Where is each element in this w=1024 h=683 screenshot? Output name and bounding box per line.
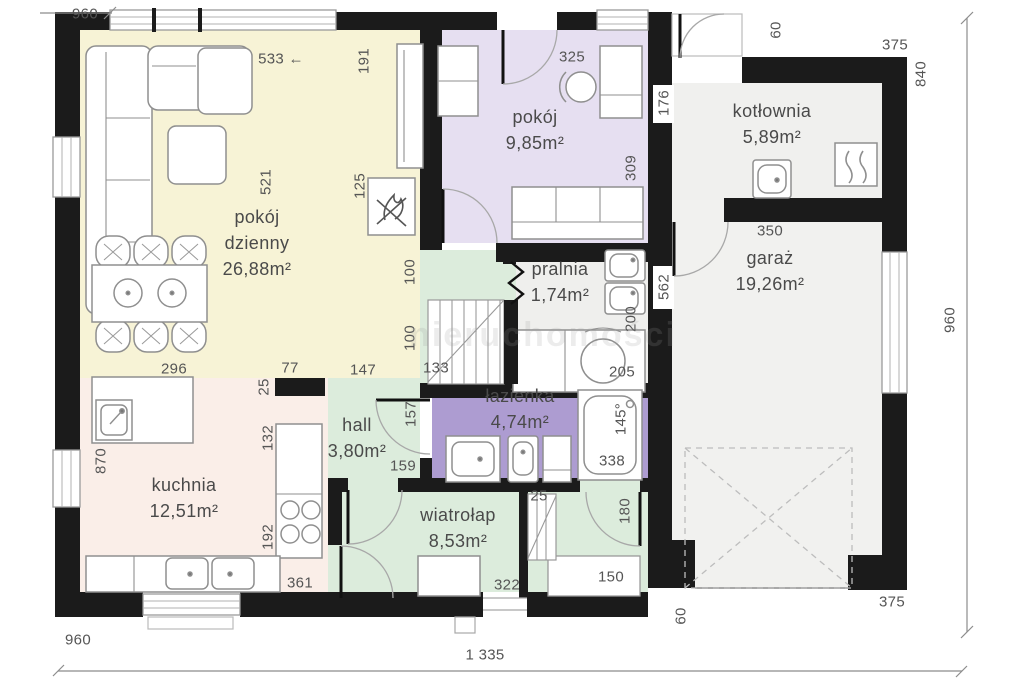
dimension-label: 176 [656,90,673,116]
dimension-label: 200 [623,306,640,332]
vestibule-cabinet [418,556,480,596]
dimension-label: 205 [609,364,635,381]
room-label: kotłownia5,89m² [733,98,812,150]
bathroom-cabinet [543,436,571,482]
dimension-label: 840 [913,61,930,87]
dimension-label: 325 [559,49,585,66]
dimension-label: 309 [623,155,640,181]
dimension-label: 100 [402,325,419,351]
room-label: pralnia1,74m² [531,256,589,308]
dimension-label: 25 [256,378,273,395]
dimension-label: 960 [942,307,959,333]
dimension-label: 25 [530,488,547,505]
boiler-sink [753,160,791,198]
dimension-label: 960 [72,6,98,23]
dimension-label: 60 [673,607,690,624]
dimension-label: 132 [260,425,277,451]
dimension-label: 157 [403,401,420,427]
room-label: hall3,80m² [328,412,386,464]
dimension-label: 322 [494,577,520,594]
dimension-label: 296 [161,361,187,378]
room-label: łazienka4,74m² [485,383,554,435]
dimension-label: 562 [656,274,673,300]
floor-plan-page: pokójdzienny26,88m²pokój9,85m²kotłownia5… [0,0,1024,683]
toilet [508,436,538,482]
dimension-label: 375 [882,37,908,54]
kitchen-left-window [53,450,80,507]
dimension-label: 147 [350,362,376,379]
dimension-label: 870 [93,448,110,474]
room-label: pokójdzienny26,88m² [223,204,292,282]
dimension-label: 521 [258,169,275,195]
dimension-label: 338 [599,453,625,470]
dimension-label: 960 [65,632,91,649]
dimension-label: 133 [423,360,449,377]
wardrobe [600,46,642,118]
room-label: garaż19,26m² [736,245,805,297]
kitchen-island [92,377,193,443]
dimension-label: 375 [879,594,905,611]
kitchen-bottom-window [143,594,240,615]
dimension-label: 60 [768,21,785,38]
dimension-label: 191 [356,48,373,74]
kitchen-counter-bottom [86,556,280,592]
dining-table [92,236,207,352]
kitchen-counter-right [276,424,322,558]
dimension-label: 361 [287,575,313,592]
dimension-label: 150 [598,569,624,586]
dimension-label: 77 [281,360,298,377]
room-label: kuchnia12,51m² [150,472,219,524]
dimension-label: 159 [390,458,416,475]
stairwell-window [548,556,640,596]
tv-unit [397,44,423,168]
dimension-label: 100 [402,259,419,285]
living-room-window [110,10,336,30]
living-left-window [53,137,80,197]
dimension-label: 145° [613,403,630,435]
bedroom-sofa [512,187,643,239]
fireplace [368,178,415,235]
room-label: pokój9,85m² [506,104,564,156]
dimension-label: 180 [617,498,634,524]
room-label: wiatrołap8,53m² [420,502,496,554]
dimension-label: 192 [260,524,277,550]
bathroom-vanity [446,436,500,482]
garage-window [882,252,907,393]
ottoman [168,126,226,184]
entry-porch [672,14,742,58]
bedroom-window [597,10,648,30]
dimension-label: 350 [757,223,783,240]
dimension-label: 1 335 [465,647,504,664]
bedroom-desk [438,46,478,116]
dimension-label: 125 [352,173,369,199]
kitchen-window-sill [148,617,233,629]
dimension-label: 533 ← [258,51,304,68]
entrance-step [455,617,475,633]
boiler-unit [835,143,877,186]
